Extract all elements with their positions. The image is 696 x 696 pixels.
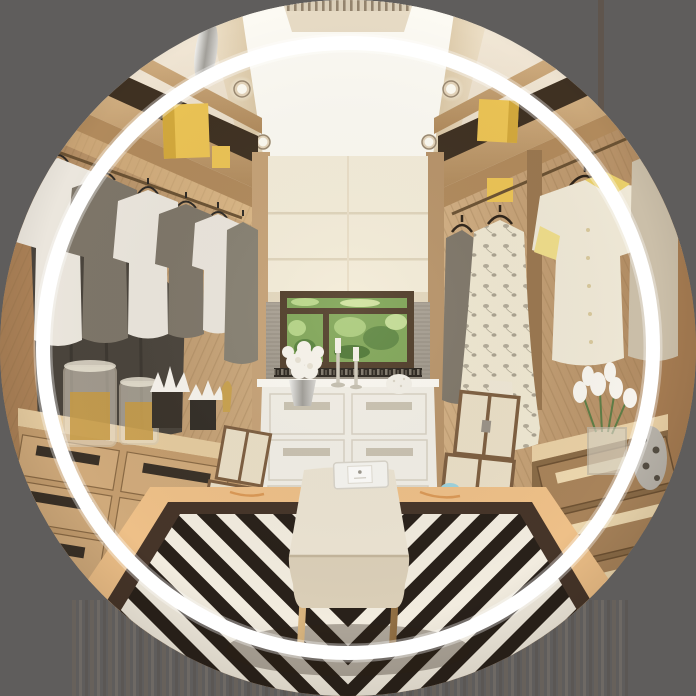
- vignette: [0, 0, 696, 696]
- circular-closet-photo: [0, 0, 696, 696]
- walk-in-closet-photo: [0, 0, 696, 696]
- photo-circle: [0, 0, 696, 696]
